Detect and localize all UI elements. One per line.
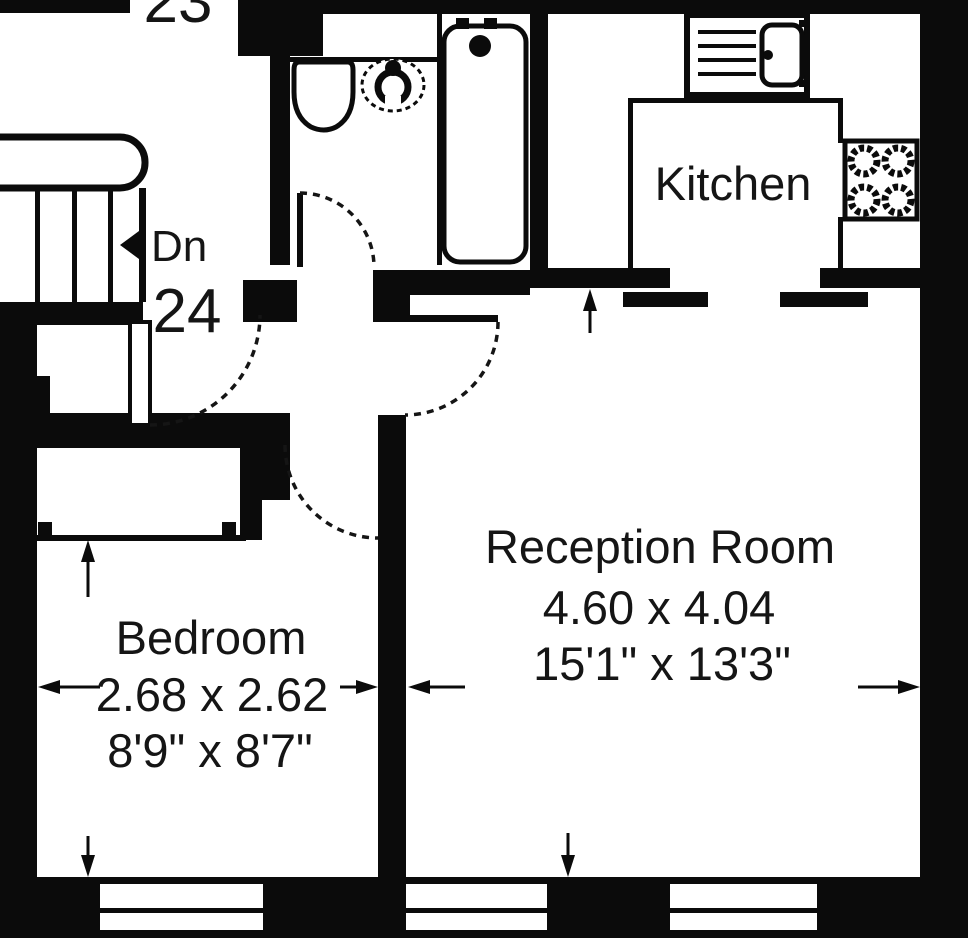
reception-window-right-mullion (670, 908, 817, 913)
wall-reception-door-jamb (373, 270, 410, 322)
windows (100, 884, 817, 930)
basin-bowl-opening (385, 96, 401, 108)
dimension-arrows (38, 289, 920, 877)
bathtub-icon (444, 26, 526, 262)
sink-drainer-line-3 (698, 58, 756, 62)
bedroom-window-mullion (100, 908, 263, 913)
reception-dim-up-arrow (583, 289, 597, 311)
stairs-down-arrow-bar (139, 227, 146, 264)
flat-number-24: 24 (153, 277, 222, 346)
wall-left-step (37, 376, 50, 415)
reception-window-left-mullion (406, 908, 547, 913)
flat-number-23: 23 (144, 0, 213, 36)
worktop-left-edge (628, 98, 633, 268)
stair-handrail (0, 137, 145, 188)
wall-bedroom-reception-partition (378, 415, 406, 877)
wardrobe-tab-right (222, 522, 236, 536)
worktop-right-edge-lower (838, 217, 843, 268)
reception-window-left (406, 884, 547, 930)
stairs (0, 137, 146, 302)
bedroom-label: Bedroom (116, 611, 307, 664)
sink-corner-nub-bottom (799, 80, 806, 87)
sink-drainer-line-4 (698, 72, 756, 76)
worktop-top-edge (628, 98, 843, 103)
bathtub-drain (469, 35, 491, 57)
bedroom-dim-right-arrow (356, 680, 378, 694)
kitchen-label: Kitchen (655, 157, 812, 210)
reception-dim-left-arrow (408, 680, 430, 694)
wall-top-left-bar (0, 0, 130, 13)
bathroom-door-swing-arc (300, 193, 374, 267)
bathtub-tap-left (456, 18, 469, 29)
floorplan: 23 Dn 24 Kitchen Reception Room 4.60 x 4… (0, 0, 980, 941)
reception-door-leaf (408, 315, 498, 322)
entry-door-leaf (130, 322, 150, 425)
sink-drainer-line-1 (698, 30, 756, 34)
bedroom-window (100, 884, 263, 930)
bedroom-dims-imperial: 8'9" x 8'7" (107, 724, 313, 777)
sink-tap-icon (763, 50, 773, 60)
stairs-down-arrow-icon (120, 231, 139, 259)
wall-bathroom-left (270, 14, 290, 265)
kitchen-fixtures (628, 15, 917, 268)
bathroom-fixtures (290, 18, 526, 262)
wardrobe (34, 445, 243, 538)
worktop-right-edge-upper (838, 98, 843, 143)
wardrobe-tab-left (38, 522, 52, 536)
stair-tread-2 (72, 188, 77, 302)
toilet-icon (294, 62, 353, 130)
sink-drainer-line-2 (698, 44, 756, 48)
reception-dims-imperial: 15'1" x 13'3" (533, 637, 791, 690)
reception-door-swing-arc (405, 322, 498, 415)
wall-reception-top-right (780, 292, 868, 307)
bedroom-dims-metric: 2.68 x 2.62 (96, 668, 329, 721)
wall-top-strip (323, 0, 920, 14)
bathtub-tap-right (484, 18, 497, 29)
reception-dims-metric: 4.60 x 4.04 (543, 581, 776, 634)
wall-bedroom-door-pier (243, 445, 290, 500)
bedroom-fixtures (34, 445, 243, 538)
bedroom-door-swing-arc (285, 445, 378, 538)
reception-dim-down-arrow (561, 855, 575, 877)
reception-dim-right-arrow (898, 680, 920, 694)
wall-bathroom-right (530, 12, 548, 268)
stair-tread-1 (35, 188, 40, 302)
bedroom-dim-down-arrow (81, 855, 95, 877)
wall-left-external (0, 302, 37, 938)
wall-bathroom-partition (437, 14, 442, 265)
reception-label: Reception Room (485, 520, 835, 573)
wall-kitchen-bottom-right (820, 268, 920, 288)
sink-corner-nub-top (799, 20, 806, 27)
wall-reception-top-left (623, 292, 708, 307)
wall-entry-door-stub (243, 280, 297, 322)
wall-kitchen-bottom-left (530, 268, 670, 288)
basin-tap-icon (385, 60, 401, 76)
stair-tread-3 (108, 188, 113, 302)
wall-right-external (920, 0, 968, 938)
reception-window-right (670, 884, 817, 930)
bedroom-dim-up-arrow (81, 540, 95, 562)
stairs-dn-label: Dn (151, 222, 207, 271)
bathroom-door-leaf (297, 193, 303, 267)
bedroom-dim-left-arrow (38, 680, 60, 694)
